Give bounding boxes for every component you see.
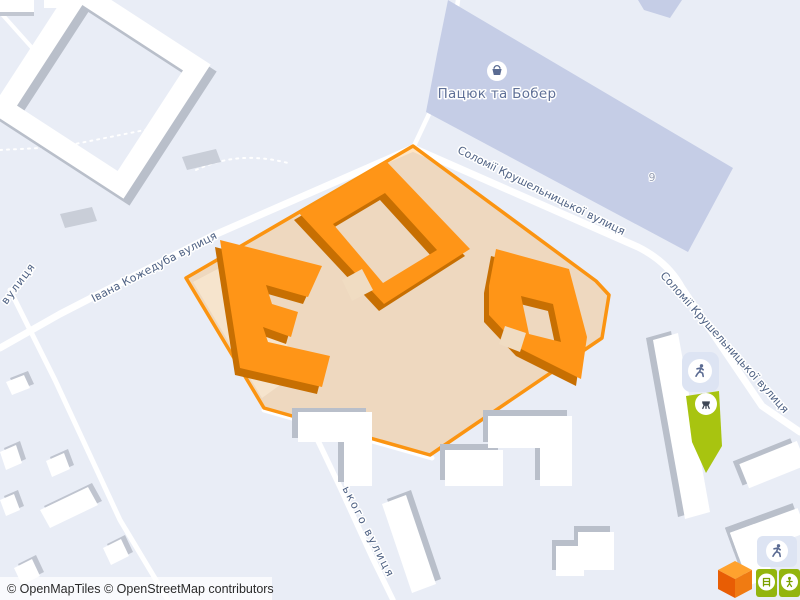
sports-pitch-icon[interactable] <box>682 352 719 392</box>
bbq-icon[interactable] <box>695 393 717 415</box>
house-number-label: 9 <box>649 171 656 184</box>
attribution-text[interactable]: © OpenMapTiles © OpenStreetMap contribut… <box>7 582 274 596</box>
map-canvas[interactable]: Соломії Крушельницької вулиця Соломії Кр… <box>0 0 800 600</box>
poi-label: Пацюк та Бобер <box>438 86 557 102</box>
attribution-bar[interactable]: © OpenMapTiles © OpenStreetMap contribut… <box>0 577 274 600</box>
sports-pitch-icon-2[interactable] <box>757 536 797 567</box>
playground-person-icon[interactable] <box>779 569 800 597</box>
playground-ladder-icon[interactable] <box>756 569 777 597</box>
map-svg: Соломії Крушельницької вулиця Соломії Кр… <box>0 0 800 600</box>
